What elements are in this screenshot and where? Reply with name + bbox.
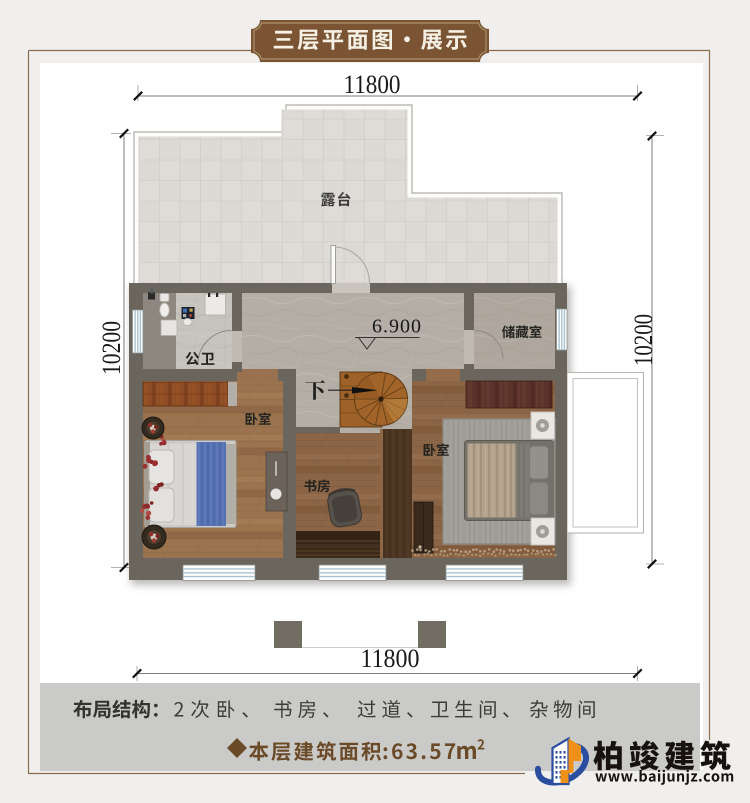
svg-text:11800: 11800	[344, 70, 401, 99]
svg-text:10200: 10200	[97, 321, 126, 375]
svg-text:11800: 11800	[361, 644, 420, 673]
svg-text:10200: 10200	[629, 314, 658, 366]
svg-text:6.900: 6.900	[372, 316, 422, 338]
